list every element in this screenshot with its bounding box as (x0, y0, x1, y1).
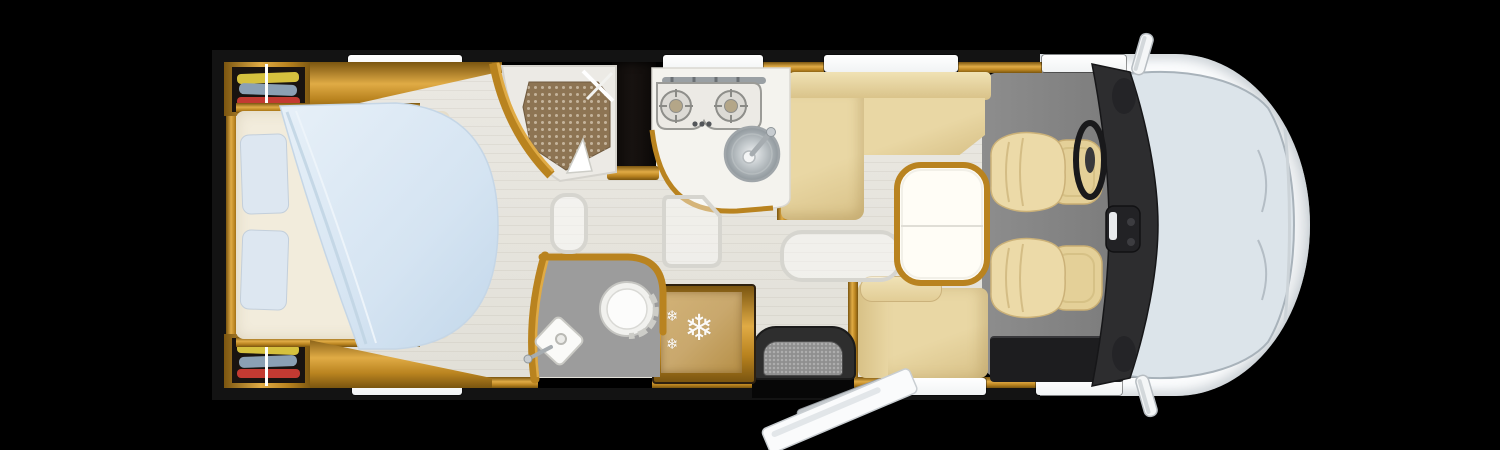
bed-duvet (280, 103, 498, 349)
floor-mat-kitchen (664, 197, 720, 266)
console-screen (1109, 212, 1117, 240)
floor-mat-bedroom (552, 195, 586, 252)
driver-seat (991, 133, 1102, 212)
dashboard-vent-bottom (1112, 336, 1136, 372)
side-mirror-top (1130, 32, 1154, 76)
console-knob-1 (1127, 218, 1135, 226)
passenger-seat (991, 239, 1102, 318)
motorhome-floorplan: ❄ ❄ ❄ (0, 0, 1500, 450)
washbasin-drain (556, 334, 566, 344)
floorplan-detail-layer (0, 0, 1500, 450)
hob-control-knobs (692, 121, 711, 126)
floor-mat-lounge (782, 232, 900, 280)
console-knob-2 (1127, 238, 1135, 246)
steering-wheel-hub (1085, 147, 1095, 173)
toilet-bowl (607, 289, 647, 329)
side-mirror-bottom (1134, 374, 1158, 418)
kitchen-faucet-knob (767, 128, 776, 137)
washbasin-faucet-knob (524, 355, 532, 363)
dinette-table (897, 165, 987, 283)
entry-door-open (761, 368, 918, 450)
dashboard-vent-top (1112, 78, 1136, 114)
